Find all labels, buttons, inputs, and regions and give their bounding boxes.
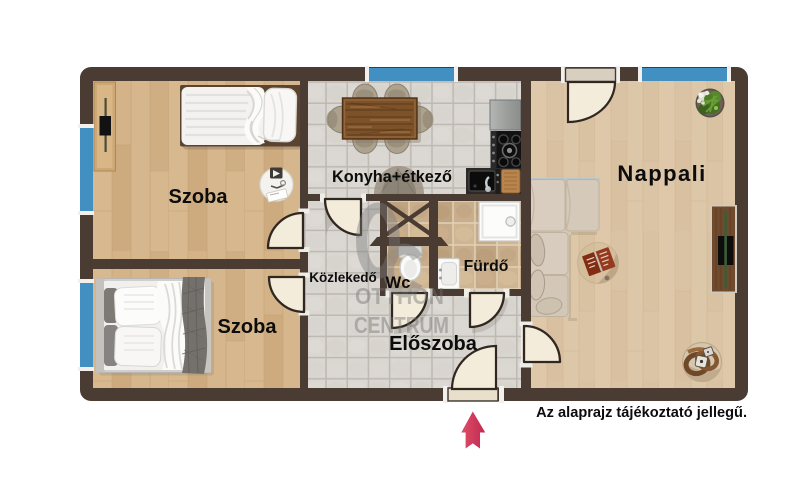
svg-text:Wc: Wc: [386, 274, 411, 292]
svg-text:Közlekedő: Közlekedő: [309, 270, 377, 285]
svg-text:Szoba: Szoba: [169, 186, 229, 208]
svg-text:Konyha+étkező: Konyha+étkező: [332, 168, 452, 186]
svg-text:Előszoba: Előszoba: [389, 333, 478, 355]
svg-text:Az alaprajz tájékoztató jelleg: Az alaprajz tájékoztató jellegű.: [536, 405, 747, 421]
svg-text:Nappali: Nappali: [617, 161, 706, 186]
svg-text:Fürdő: Fürdő: [464, 258, 509, 275]
svg-text:Szoba: Szoba: [218, 316, 278, 338]
